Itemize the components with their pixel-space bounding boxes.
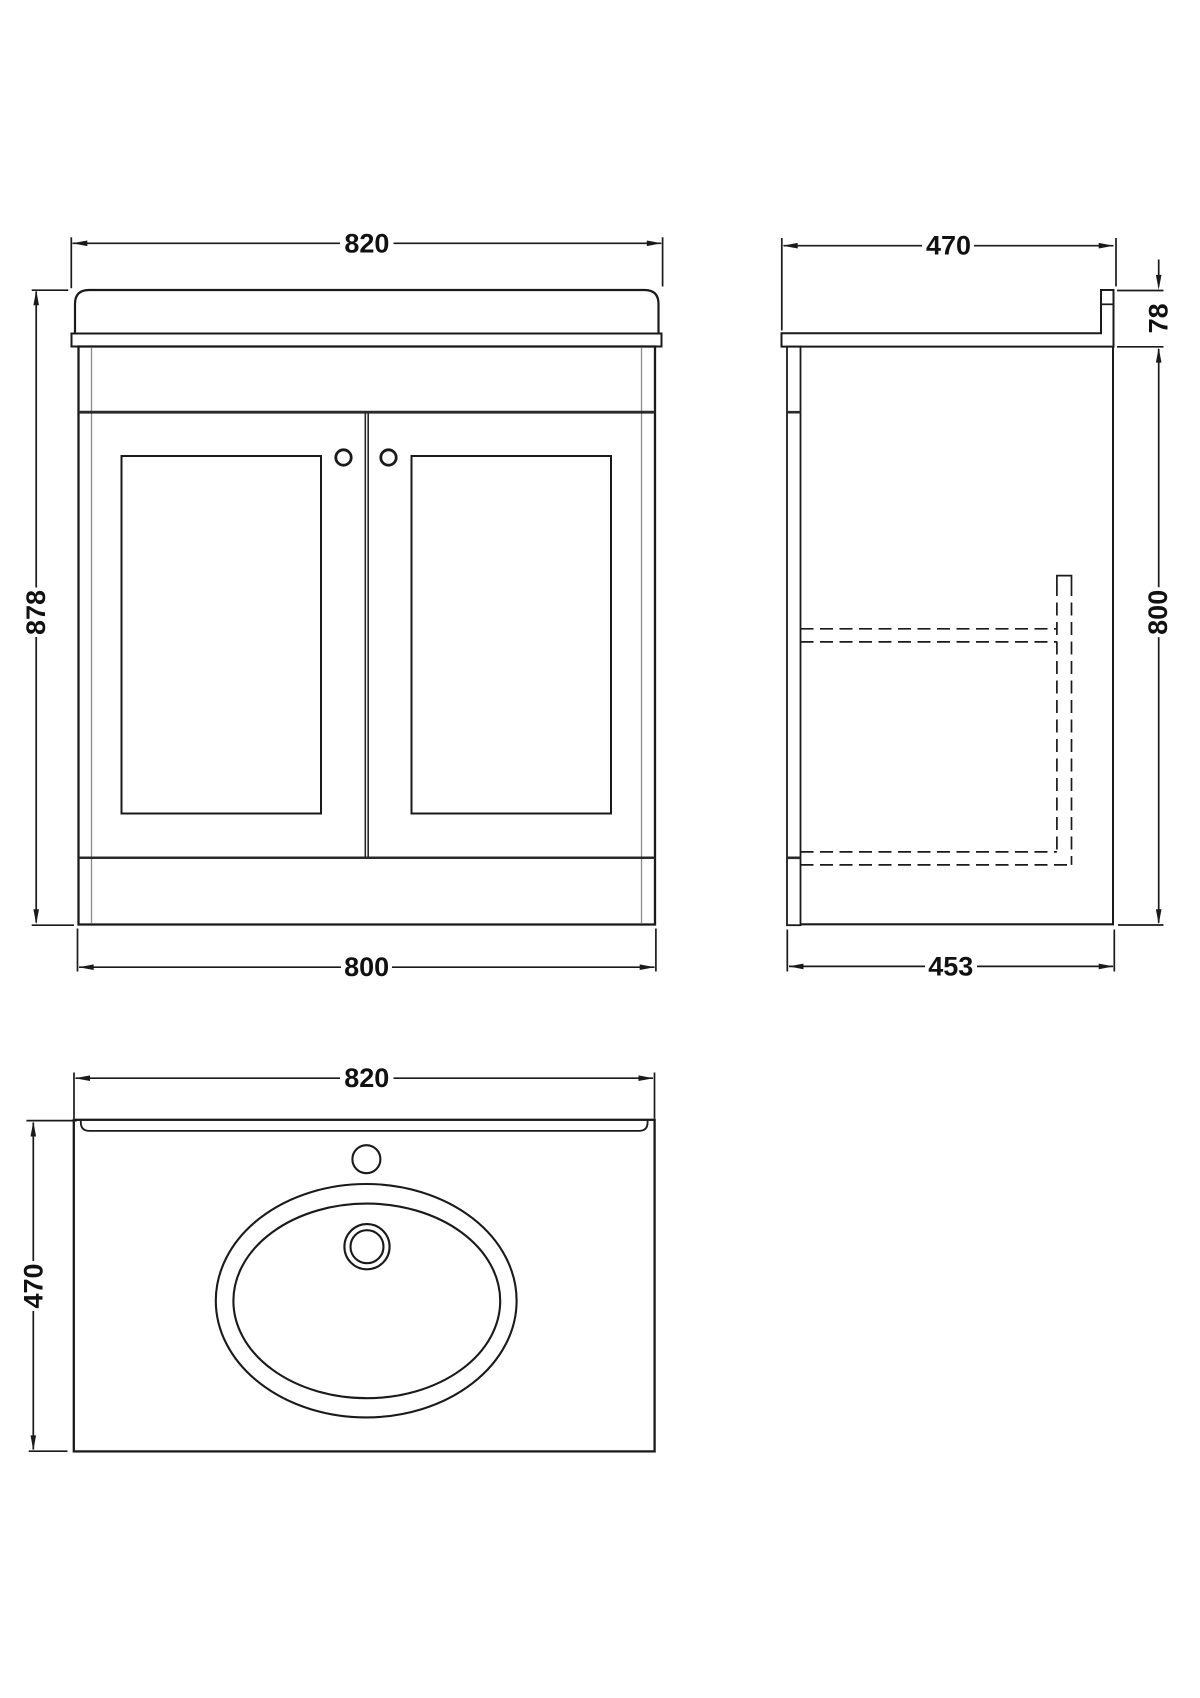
svg-text:800: 800: [1143, 590, 1173, 635]
svg-text:820: 820: [344, 228, 389, 258]
svg-text:820: 820: [344, 1063, 389, 1093]
svg-text:800: 800: [344, 952, 389, 982]
svg-text:470: 470: [18, 1263, 48, 1308]
svg-text:470: 470: [926, 231, 971, 261]
svg-text:878: 878: [21, 590, 51, 635]
svg-text:78: 78: [1143, 303, 1173, 333]
svg-text:453: 453: [928, 951, 973, 981]
